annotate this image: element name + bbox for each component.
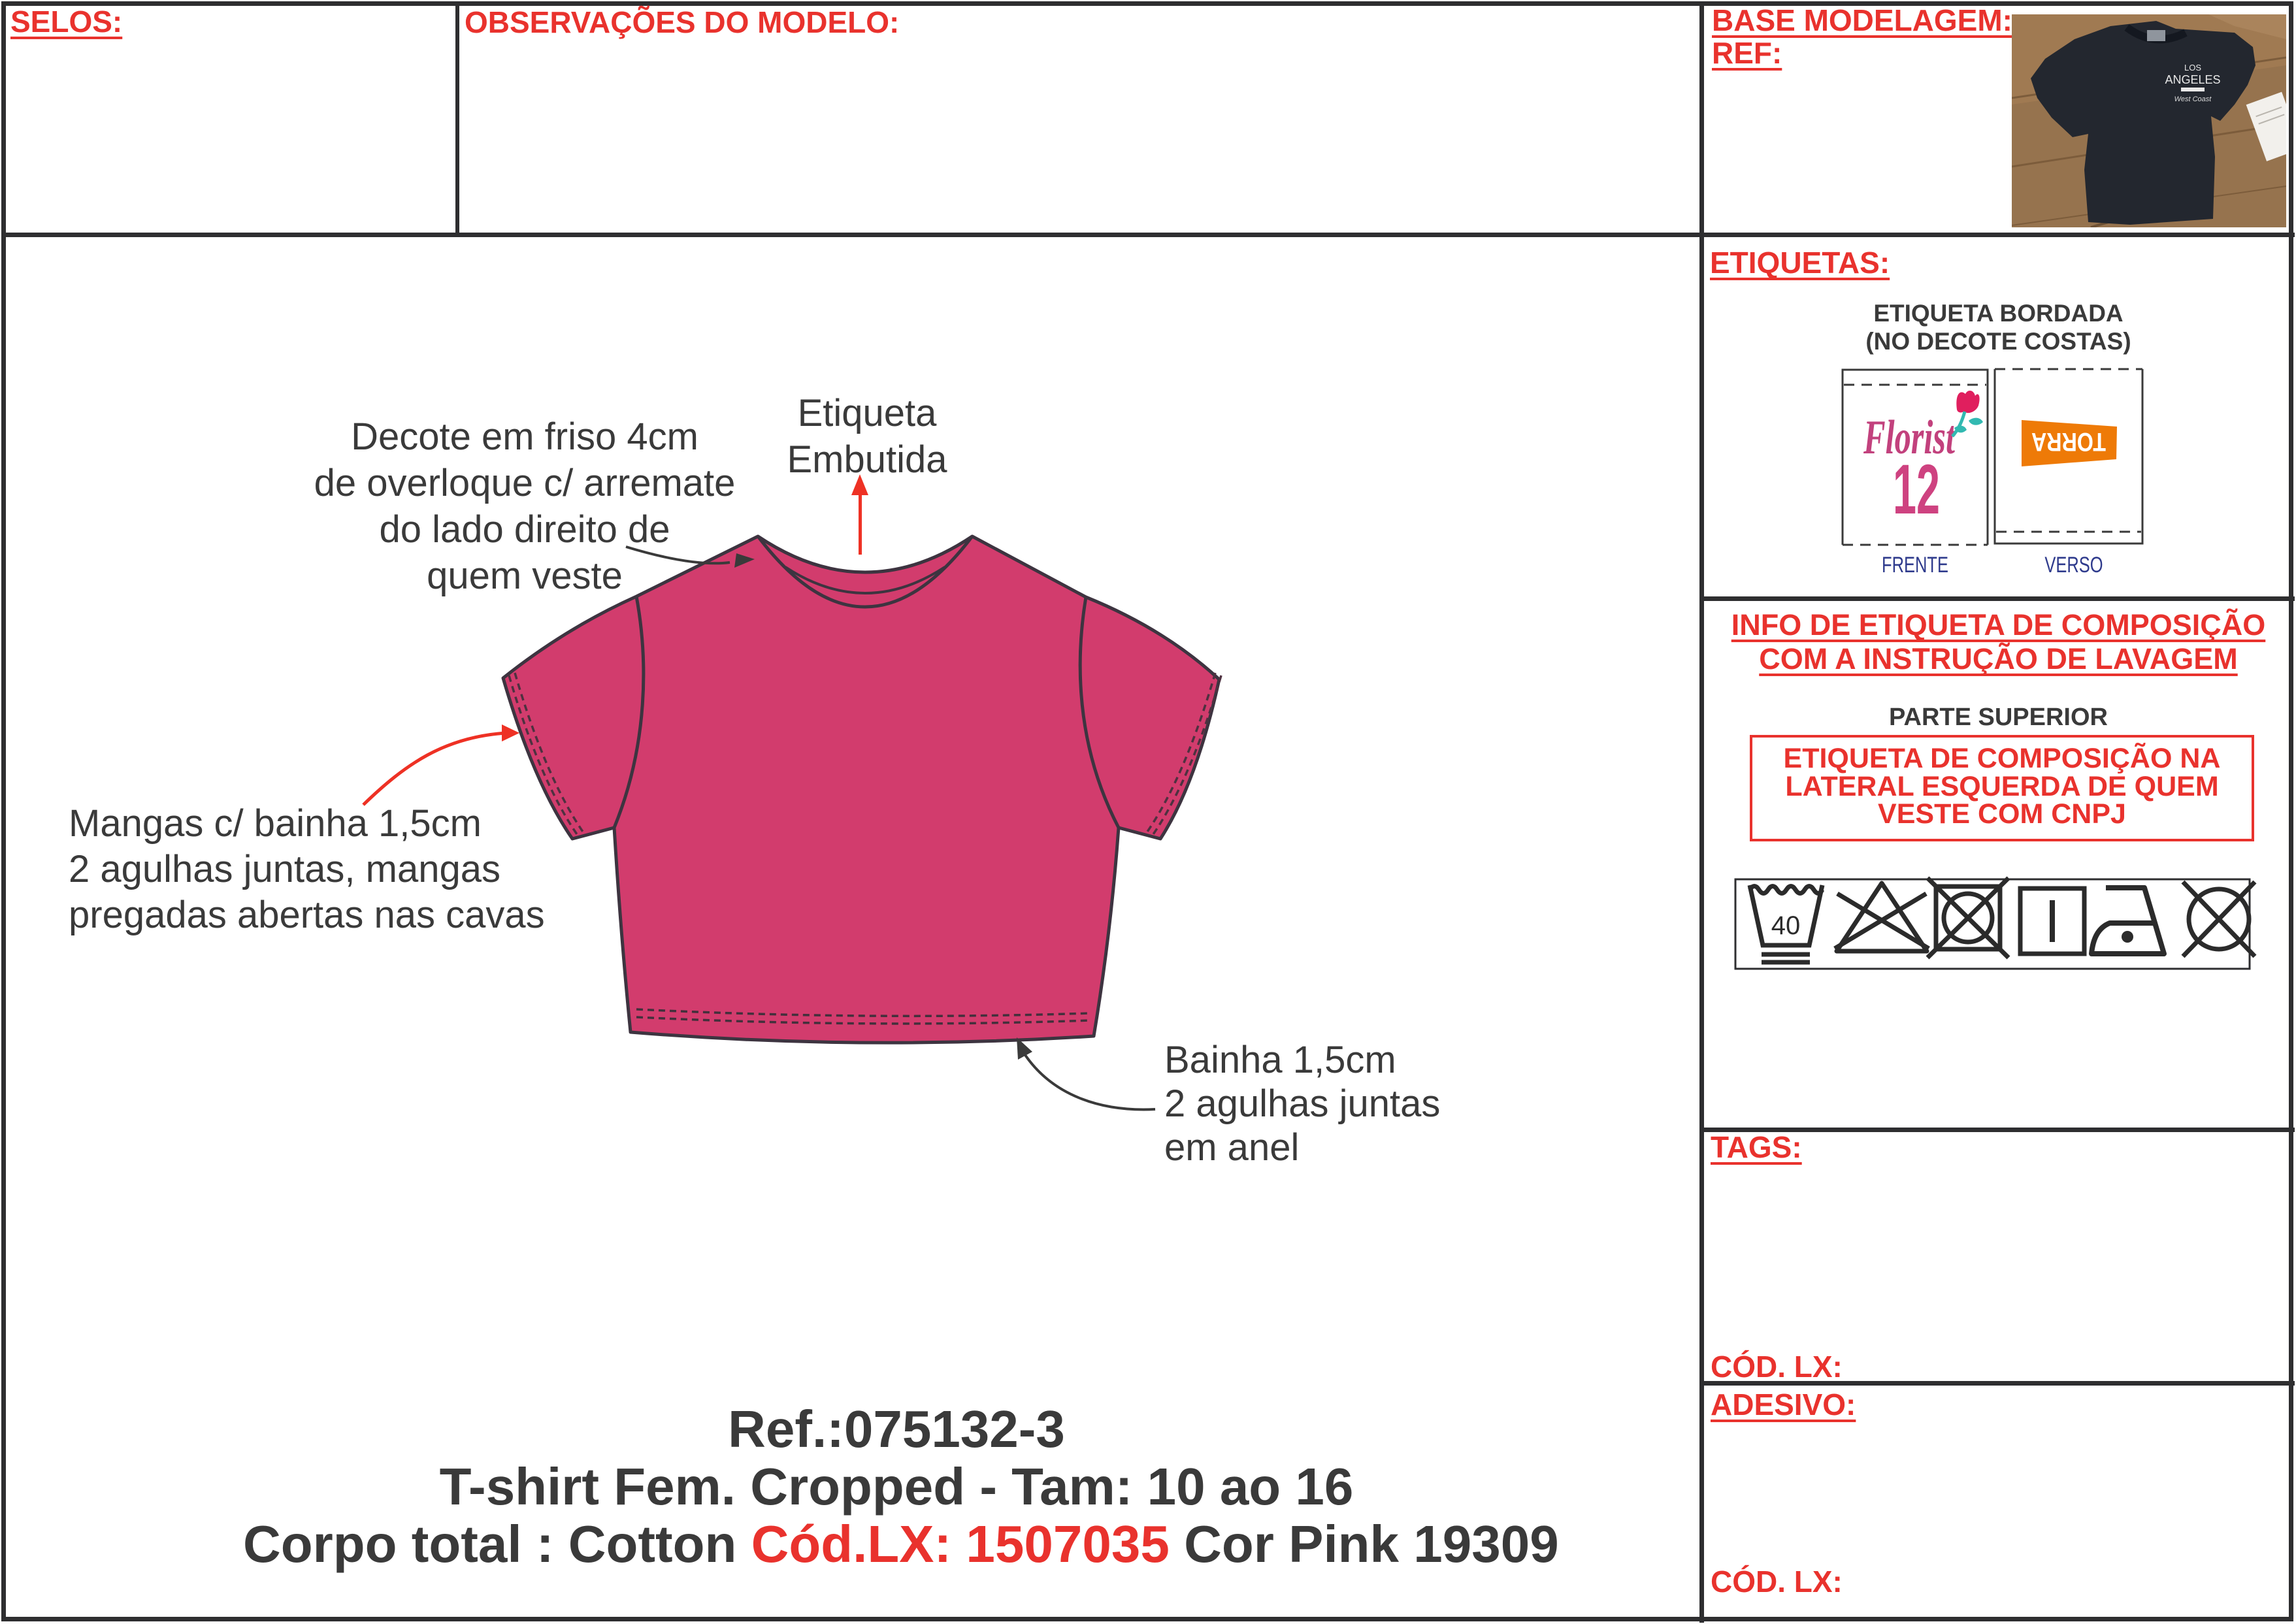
svg-text:ANGELES: ANGELES bbox=[2165, 73, 2220, 86]
svg-text:West Coast: West Coast bbox=[2174, 95, 2212, 103]
svg-text:40: 40 bbox=[1771, 911, 1801, 940]
svg-text:12: 12 bbox=[1893, 449, 1940, 528]
svg-text:TORRA: TORRA bbox=[2031, 427, 2106, 456]
svg-text:LOS: LOS bbox=[2184, 63, 2201, 73]
